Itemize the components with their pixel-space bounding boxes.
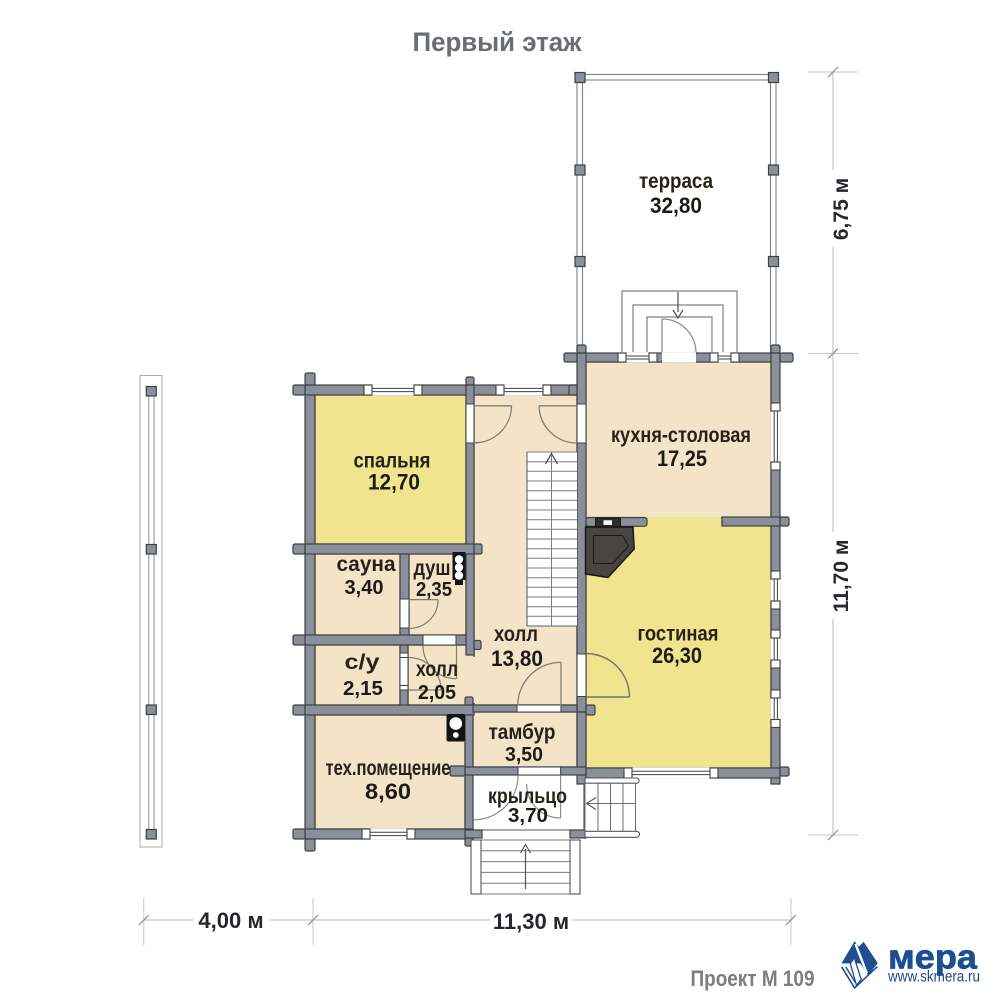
svg-text:3,70: 3,70	[508, 805, 548, 827]
svg-text:сауна: сауна	[337, 553, 396, 576]
svg-text:3,50: 3,50	[505, 744, 543, 766]
svg-text:тех.помещение: тех.помещение	[326, 757, 451, 780]
svg-text:4,00 м: 4,00 м	[198, 908, 263, 933]
svg-text:душ: душ	[414, 557, 451, 580]
svg-text:2,05: 2,05	[418, 682, 456, 704]
svg-text:6,75 м: 6,75 м	[830, 178, 853, 240]
svg-text:холл: холл	[494, 623, 538, 646]
svg-text:11,30 м: 11,30 м	[493, 909, 569, 934]
svg-text:11,70 м: 11,70 м	[830, 540, 853, 613]
svg-text:26,30: 26,30	[652, 643, 702, 668]
svg-text:32,80: 32,80	[650, 193, 702, 218]
svg-text:17,25: 17,25	[657, 446, 707, 471]
svg-text:8,60: 8,60	[365, 779, 411, 804]
svg-text:12,70: 12,70	[368, 470, 420, 495]
svg-text:13,80: 13,80	[491, 646, 543, 671]
svg-text:2,35: 2,35	[416, 579, 452, 601]
svg-text:3,40: 3,40	[345, 577, 384, 599]
svg-text:кухня-столовая: кухня-столовая	[611, 424, 751, 447]
svg-text:Первый этаж: Первый этаж	[413, 27, 583, 57]
svg-text:www.skmera.ru: www.skmera.ru	[887, 969, 980, 986]
svg-text:2,15: 2,15	[343, 678, 383, 700]
svg-text:тамбур: тамбур	[489, 721, 556, 744]
svg-text:холл: холл	[416, 658, 458, 681]
svg-text:с/у: с/у	[345, 651, 380, 674]
svg-text:терраса: терраса	[639, 170, 713, 193]
svg-text:Проект М 109: Проект М 109	[691, 966, 815, 991]
